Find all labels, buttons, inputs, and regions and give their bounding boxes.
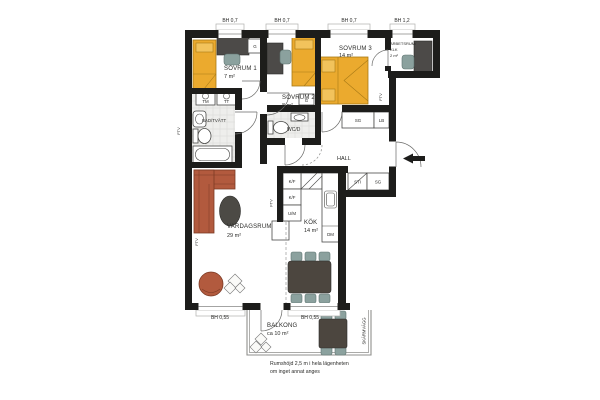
armchair [199, 272, 223, 296]
plant-livingroom [224, 274, 245, 294]
label-closet-lb: LB [379, 118, 384, 123]
label-sovrum2-area: 8 m² [282, 103, 293, 109]
label-bad: BAD/TVÄTT [202, 118, 226, 123]
label-vardagsrum-name: VARDAGSRUM [227, 224, 272, 230]
window-label-top-3: BH 0,7 [341, 18, 357, 24]
label-closet-g2: G [305, 98, 309, 103]
desk-arbetsrum [402, 41, 432, 75]
label-closet-sg2: SG [375, 180, 382, 185]
label-vardagsrum-area: 29 m² [227, 233, 241, 239]
label-closet-sti: STI [354, 180, 361, 185]
label-ftv-2: FTV [194, 238, 199, 246]
floor-plan-svg: BH 0,7 BH 0,7 BH 0,7 BH 1,2 BH 0,55 BH 0… [0, 0, 600, 400]
label-balkong-area: ca 10 m² [267, 331, 289, 337]
bed-sovrum2 [292, 37, 316, 86]
label-tt: TT [224, 99, 230, 104]
label-arbetsrum-area: 2 m² [390, 53, 399, 58]
label-ftv-1: FTV [176, 127, 181, 135]
label-sovrum3-name: SOVRUM 3 [339, 46, 372, 52]
label-ftv-4: FTV [378, 93, 383, 101]
window-label-top-2: BH 0,7 [274, 18, 290, 24]
label-kf1: K/F [289, 179, 296, 184]
window-bh07-1 [218, 30, 242, 38]
kitchen-tall-cabinet [272, 221, 289, 240]
note-line1: Rumshöjd 2,5 m i hela lägenheten [270, 361, 349, 367]
label-skarmvagg: SKÄRMVÄGG [362, 318, 367, 345]
window-label-top-1: BH 0,7 [222, 18, 238, 24]
door-bathroom [235, 110, 257, 134]
door-sovrum1 [242, 81, 260, 99]
door-arbetsrum [372, 50, 388, 66]
window-label-top-4: BH 1,2 [394, 18, 410, 24]
label-dm: DM [327, 232, 334, 237]
entrance-arrow-icon [403, 154, 425, 164]
desk-sovrum2 [267, 43, 291, 74]
window-bh07-2 [268, 30, 296, 38]
bed-sovrum3 [319, 57, 368, 104]
window-bh055-2 [290, 303, 338, 310]
label-closet-g1: G [253, 44, 257, 49]
label-closet-sg1: SG [355, 118, 362, 123]
floor-plan-page: BH 0,7 BH 0,7 BH 0,7 BH 1,2 BH 0,55 BH 0… [0, 0, 600, 400]
bed-sovrum1 [193, 40, 216, 89]
label-arbetsrum-line2: KLK [390, 47, 398, 52]
window-label-bottom-2: BH 0,55 [301, 315, 319, 321]
bathroom-toilet [193, 129, 211, 144]
balcony-table [319, 311, 347, 355]
label-arbetsrum-line1: ARBETSRUM/ [390, 41, 417, 46]
wc-sink [291, 113, 308, 121]
bathtub [193, 146, 232, 163]
door-sovrum3 [322, 112, 342, 132]
coffee-table [220, 196, 241, 226]
note-line2: om inget annat anges [270, 369, 320, 375]
door-wc [285, 145, 322, 165]
label-ftv-3: FTV [269, 199, 274, 207]
window-bh055-1 [198, 303, 243, 310]
label-um: U/M [288, 211, 296, 216]
label-tm: TM [202, 99, 209, 104]
label-wcd: WC/D [287, 127, 301, 133]
label-kf2: K/F [289, 195, 296, 200]
window-bh12 [392, 30, 413, 38]
window-label-bottom-1: BH 0,55 [211, 315, 229, 321]
label-sovrum2-name: SOVRUM 2 [282, 95, 315, 101]
door-entrance [389, 141, 421, 167]
label-kok-area: 14 m² [304, 228, 318, 234]
label-balkong-name: BALKONG [267, 323, 298, 329]
label-sovrum1-name: SOVRUM 1 [224, 66, 257, 72]
label-hall: HALL [337, 156, 351, 162]
desk-sovrum1 [217, 37, 249, 65]
wc-toilet [268, 121, 289, 134]
label-sovrum3-area: 14 m² [339, 53, 353, 59]
window-bh07-3 [330, 30, 368, 38]
dining-table [288, 252, 331, 303]
label-kok-name: KÖK [304, 219, 317, 226]
label-sovrum1-area: 7 m² [224, 74, 235, 80]
